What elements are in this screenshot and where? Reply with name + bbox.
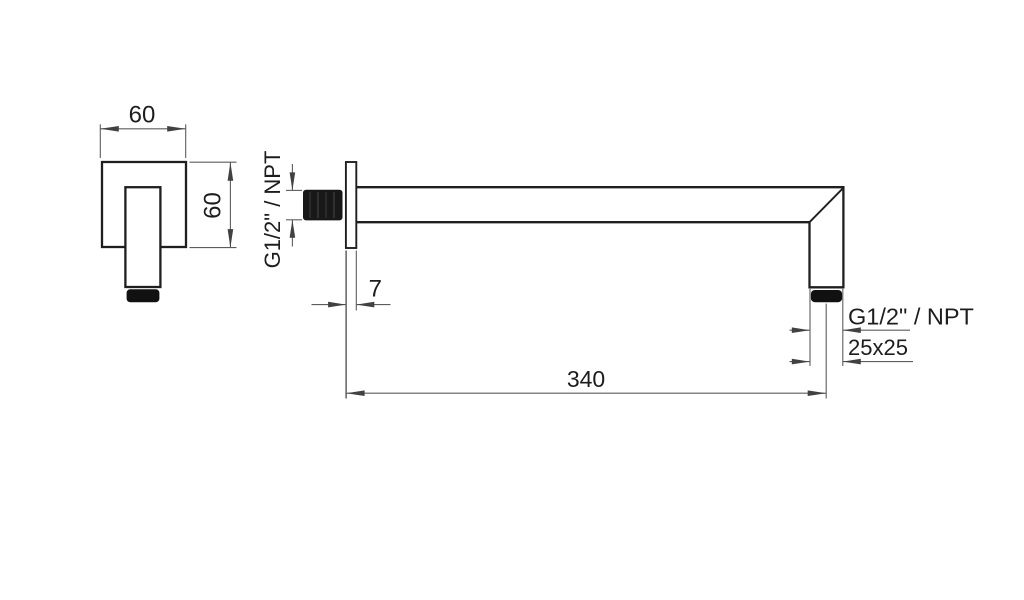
svg-text:340: 340	[567, 366, 605, 392]
svg-text:60: 60	[129, 102, 156, 129]
svg-text:G1/2" / NPT: G1/2" / NPT	[848, 303, 974, 329]
svg-text:25x25: 25x25	[848, 335, 908, 360]
svg-text:7: 7	[369, 275, 382, 302]
svg-text:G1/2" / NPT: G1/2" / NPT	[260, 151, 285, 269]
svg-text:60: 60	[200, 192, 227, 219]
